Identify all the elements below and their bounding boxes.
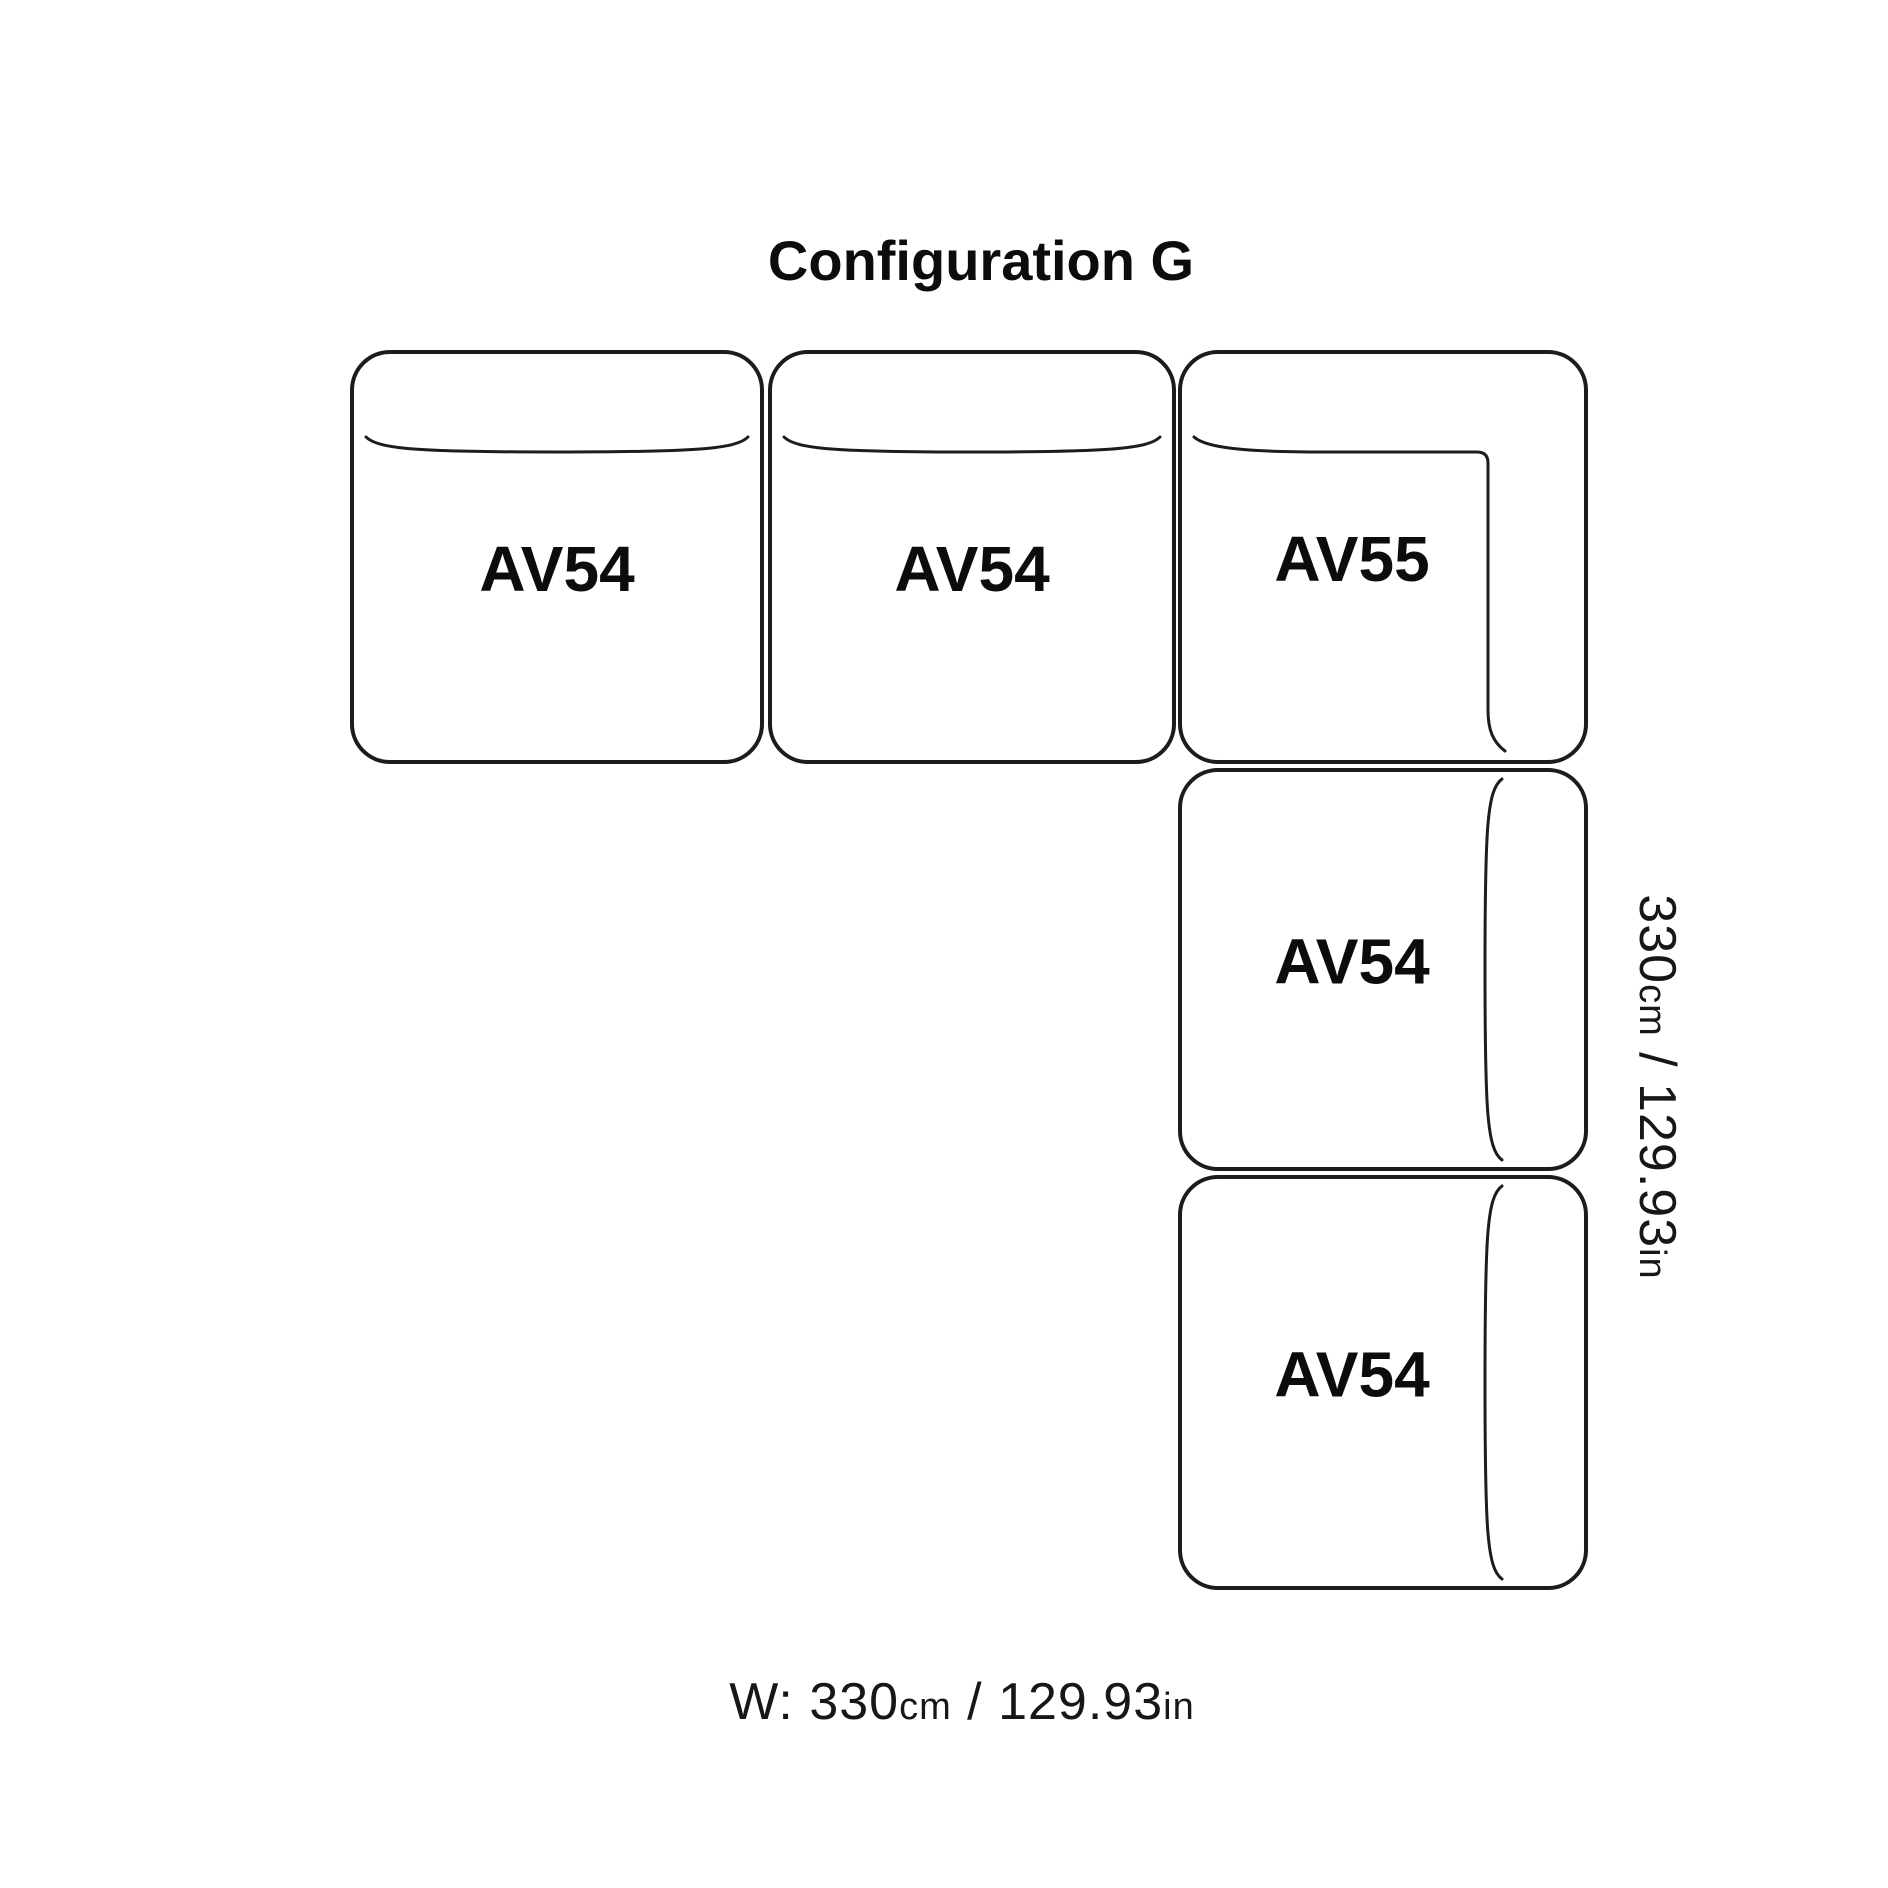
module-av54-c: AV54	[1180, 770, 1586, 1169]
module-label: AV54	[1274, 1339, 1430, 1411]
dimension-text-part: in	[1163, 1686, 1195, 1728]
dimension-text-part: cm	[1631, 984, 1673, 1037]
configuration-diagram-page: Configuration G AV54AV54AV55AV54AV54 W: …	[0, 0, 1888, 1888]
dimension-text-part: cm	[899, 1686, 952, 1728]
module-label: AV54	[1274, 926, 1430, 998]
module-av55-corner: AV55	[1180, 352, 1586, 762]
width-dimension-label: W: 330cm / 129.93in	[562, 1672, 1362, 1732]
module-label: AV54	[479, 533, 635, 605]
module-av54-d: AV54	[1180, 1177, 1586, 1588]
height-dimension-label: 330cm / 129.93in	[1622, 837, 1692, 1337]
module-label: AV54	[894, 533, 1050, 605]
module-av54-b: AV54	[770, 352, 1174, 762]
dimension-text-part: / 129.93	[1628, 1037, 1686, 1248]
dimension-text-part: W: 330	[729, 1673, 899, 1731]
dimension-text-part: in	[1631, 1248, 1673, 1280]
module-label: AV55	[1274, 523, 1429, 595]
dimension-text-part: 330	[1628, 894, 1686, 984]
dimension-text-part: / 129.93	[952, 1673, 1163, 1731]
sofa-diagram: AV54AV54AV55AV54AV54	[0, 0, 1888, 1888]
module-av54-a: AV54	[352, 352, 762, 762]
